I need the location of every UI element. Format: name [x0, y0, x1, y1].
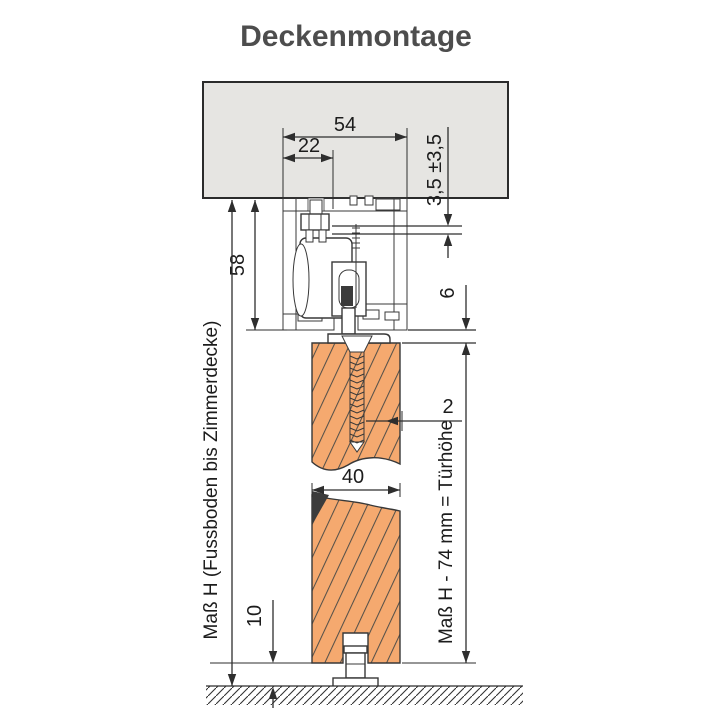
dim-height-right: Maß H - 74 mm = Türhöhe: [402, 343, 476, 663]
dim-40-label: 40: [342, 466, 364, 488]
dim-door-thickness: 40: [312, 466, 400, 497]
roller-wheel: [293, 244, 309, 316]
track-top-wall: [283, 198, 407, 211]
floor: [206, 686, 523, 705]
dim-6-label: 6: [437, 287, 459, 298]
dim-22-label: 22: [298, 135, 320, 157]
dim-2-label: 2: [442, 396, 453, 418]
ceiling-mount-drawing: Deckenmontage: [0, 0, 713, 713]
bolt-shaft: [310, 200, 322, 214]
guide-block: [346, 653, 365, 678]
dim-10-label: 10: [244, 605, 266, 627]
dim-adjustment-label: 3,5 ±3,5: [424, 134, 446, 206]
ceiling-rect: [203, 82, 508, 198]
track-right-wall: [394, 198, 407, 330]
dim-58-label: 58: [227, 254, 249, 276]
door-lower-section: [312, 495, 400, 663]
dim-mass-h-right-label: Maß H - 74 mm = Türhöhe: [436, 420, 457, 644]
door-panel: [312, 343, 400, 663]
bearing-block: [341, 286, 353, 306]
hanger-bolt: [301, 200, 329, 242]
technical-drawing-page: Deckenmontage: [0, 0, 713, 713]
hex-nut: [301, 214, 329, 230]
track-knurl-block: [376, 199, 400, 210]
dim-mass-h-left-label: Maß H (Fussboden bis Zimmerdecke): [201, 321, 222, 640]
page-title: Deckenmontage: [240, 20, 472, 53]
hanger-strap: [342, 308, 355, 334]
ceiling-slab: [203, 82, 508, 198]
dim-clearance: 6: [402, 285, 476, 343]
dim-track-height: 58: [227, 200, 287, 330]
floor-hatch: [206, 686, 523, 705]
roller-carriage: [293, 224, 366, 318]
guide-cap: [344, 646, 367, 653]
dim-54-label: 54: [334, 114, 356, 136]
